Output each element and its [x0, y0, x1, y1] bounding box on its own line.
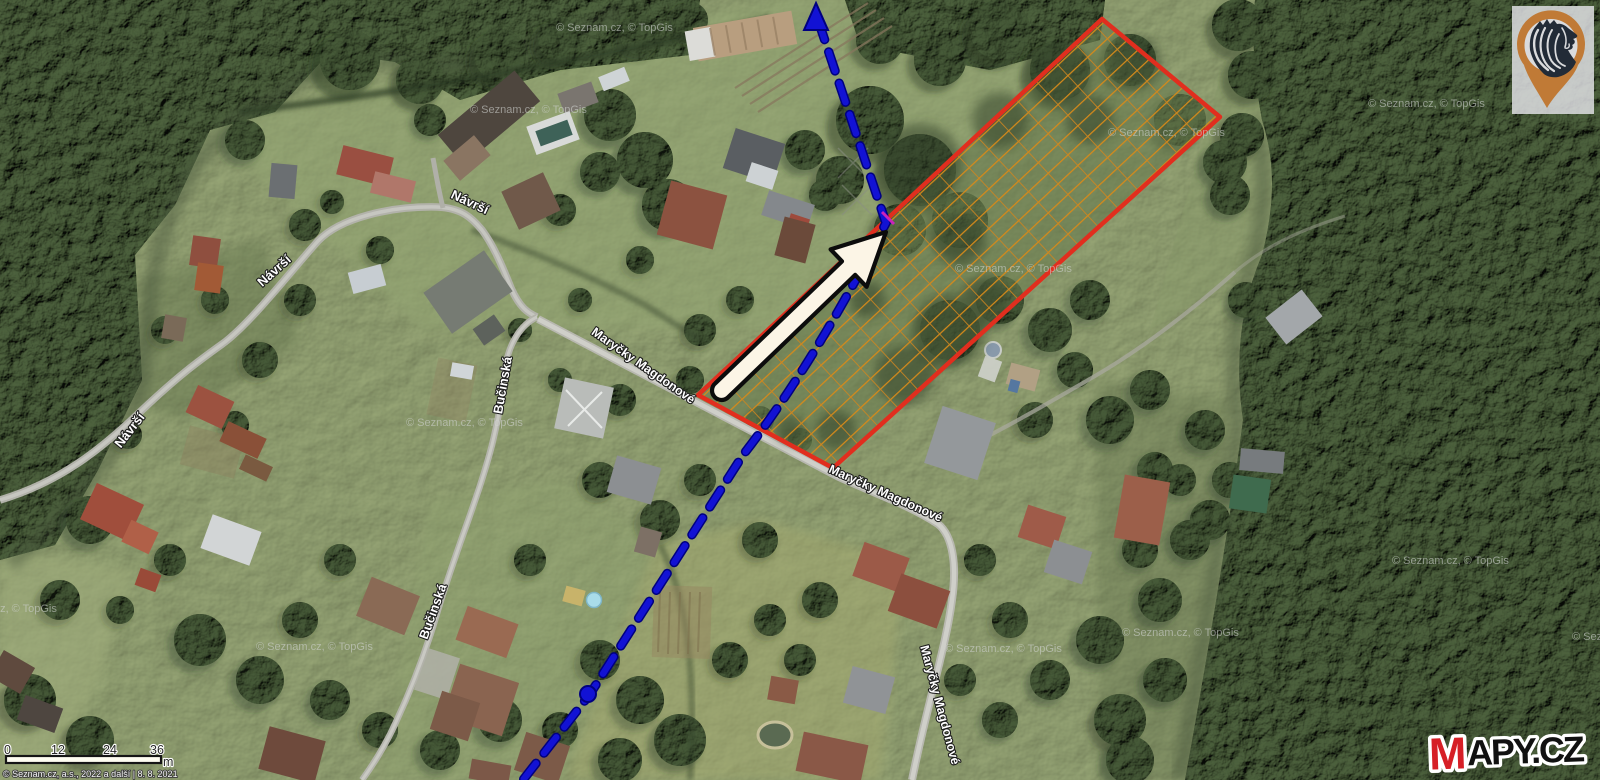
svg-text:© Seznam.cz, a.s., 2022 a dalš: © Seznam.cz, a.s., 2022 a další | 8. 8. …: [3, 769, 178, 779]
svg-text:© Seznam.cz, © TopGis: © Seznam.cz, © TopGis: [1108, 127, 1225, 139]
svg-text:© Seznam.cz, © TopGis: © Seznam.cz, © TopGis: [406, 417, 523, 429]
svg-text:© Sez: © Sez: [1572, 631, 1600, 643]
svg-text:© Seznam.cz, © TopGis: © Seznam.cz, © TopGis: [955, 263, 1072, 275]
svg-text:M: M: [1428, 727, 1467, 779]
svg-text:© Seznam.cz, © TopGis: © Seznam.cz, © TopGis: [1368, 98, 1485, 110]
svg-text:© Seznam.cz, © TopGis: © Seznam.cz, © TopGis: [0, 603, 57, 615]
svg-text:© Seznam.cz, © TopGis: © Seznam.cz, © TopGis: [470, 104, 587, 116]
svg-text:© Seznam.cz, © TopGis: © Seznam.cz, © TopGis: [1392, 555, 1509, 567]
svg-text:m: m: [163, 755, 173, 769]
svg-text:© Seznam.cz, © TopGis: © Seznam.cz, © TopGis: [1122, 627, 1239, 639]
svg-text:© Seznam.cz, © TopGis: © Seznam.cz, © TopGis: [256, 641, 373, 653]
svg-text:© Seznam.cz, © TopGis: © Seznam.cz, © TopGis: [556, 22, 673, 34]
svg-text:© Seznam.cz, © TopGis: © Seznam.cz, © TopGis: [945, 643, 1062, 655]
svg-text:APY.CZ: APY.CZ: [1466, 728, 1584, 773]
